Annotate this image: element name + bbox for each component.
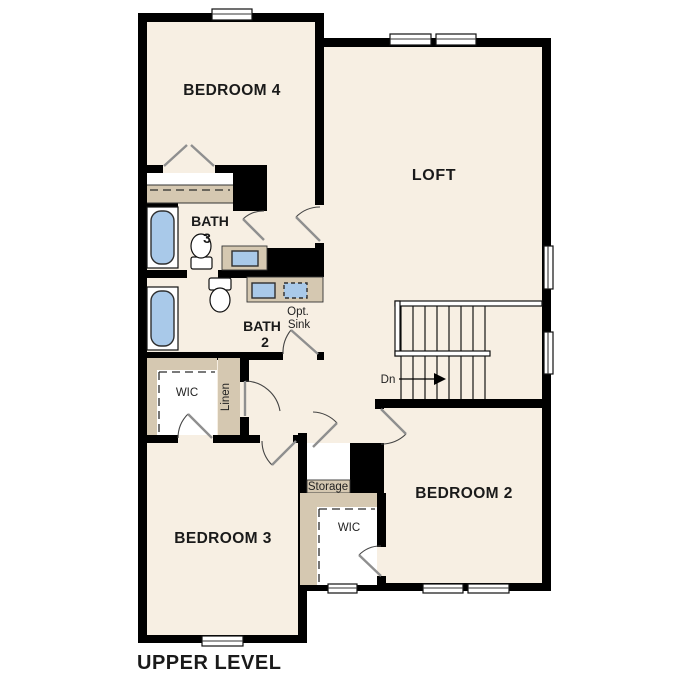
label-opt-sink-line2: Sink	[288, 319, 311, 331]
label-storage: Storage	[308, 481, 348, 493]
bedroom2-window-1	[423, 584, 463, 593]
bath3-vanity	[222, 246, 267, 270]
label-linen: Linen	[220, 383, 232, 411]
floor-plan-svg: BEDROOM 4 LOFT BATH 3 BATH 2 Opt. Sink W…	[0, 0, 687, 687]
loft-window-1	[390, 34, 431, 45]
label-opt-sink-line1: Opt.	[287, 306, 309, 318]
stair-rail-left	[395, 301, 400, 356]
wic-right-window	[328, 584, 357, 593]
stair-rail-top	[395, 301, 542, 306]
bath2-optional-sink	[284, 283, 307, 298]
room-label-bedroom2: BEDROOM 2	[415, 485, 512, 502]
room-label-bath3-line2: 3	[203, 230, 211, 246]
loft-window-2	[436, 34, 476, 45]
storage-closet	[307, 443, 350, 480]
floor-plan: BEDROOM 4 LOFT BATH 3 BATH 2 Opt. Sink W…	[0, 0, 687, 687]
label-wic-left: WIC	[176, 387, 198, 399]
label-stair-dn: Dn	[381, 374, 396, 386]
bedroom3-window	[202, 636, 243, 646]
bath2-sink	[252, 283, 275, 298]
plan-title: UPPER LEVEL	[137, 652, 281, 674]
right-wall-window-2	[544, 332, 553, 374]
room-label-bath2-line1: BATH	[243, 318, 281, 334]
bedroom4-closet-floor	[147, 173, 233, 185]
room-label-bedroom4: BEDROOM 4	[183, 82, 280, 99]
right-wall-window-1	[544, 246, 553, 289]
bath2-toilet	[209, 278, 231, 312]
label-wic-right: WIC	[338, 522, 360, 534]
room-label-bath2-line2: 2	[261, 334, 269, 350]
bedroom4-window	[212, 9, 252, 20]
room-label-bedroom3: BEDROOM 3	[174, 530, 271, 547]
room-label-loft: LOFT	[412, 167, 456, 184]
bedroom2-window-2	[468, 584, 509, 593]
stair-rail-bottom	[395, 351, 490, 356]
bath2-vanity	[247, 277, 323, 302]
bedroom4-closet-shelf	[147, 185, 233, 203]
room-label-bath3-line1: BATH	[191, 213, 229, 229]
